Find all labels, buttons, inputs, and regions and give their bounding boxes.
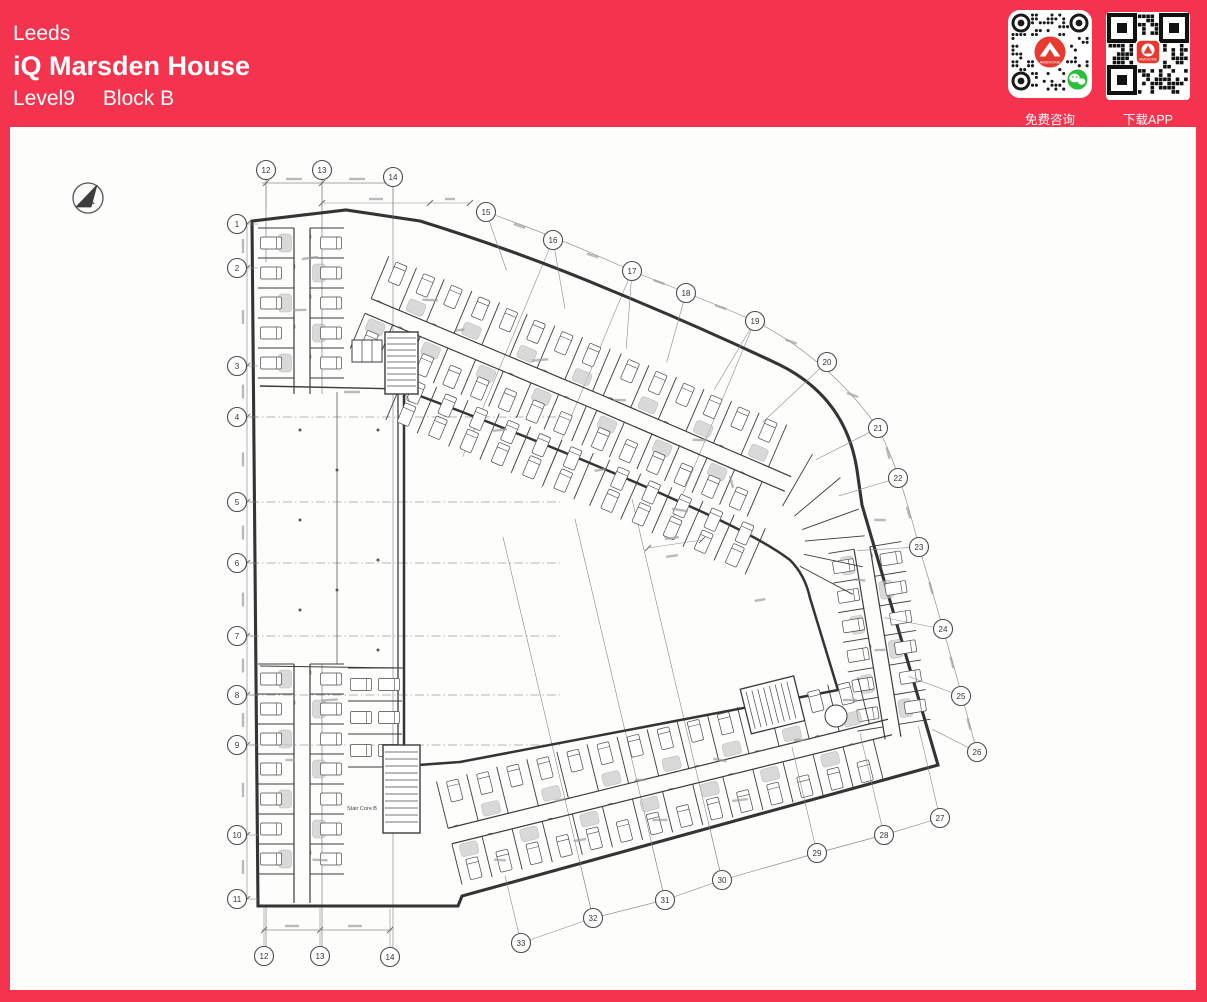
qr-module <box>1180 57 1184 61</box>
qr-module <box>1138 23 1142 27</box>
dimension-text-smudge <box>242 385 244 399</box>
stair-core-a <box>385 332 418 394</box>
qr-dot <box>1086 41 1089 44</box>
grid-bubble-label: 18 <box>682 289 691 298</box>
qr-dot <box>1062 88 1065 91</box>
qr-module <box>1155 27 1159 31</box>
qr-module <box>1125 57 1129 61</box>
qr-dot <box>1031 21 1034 24</box>
grid-bubble-label: 12 <box>262 166 271 175</box>
grid-bubble-label: 28 <box>880 831 889 840</box>
qr-dot <box>1019 68 1022 71</box>
qr-module <box>1163 61 1167 65</box>
bed-symbol <box>261 237 282 249</box>
dimension-text-smudge <box>242 860 244 874</box>
grid-bubble-label: 5 <box>235 498 240 507</box>
qr-module <box>1121 44 1125 48</box>
consult-qr-label: 免费咨询 <box>1008 109 1092 128</box>
page-title: iQ Marsden House <box>13 49 250 85</box>
qr-module <box>1155 31 1159 35</box>
bed-symbol <box>321 267 342 279</box>
dimension-text-smudge <box>294 309 307 312</box>
qr-module <box>1142 15 1146 19</box>
header: Leeds iQ Marsden House Level9Block B <box>13 20 250 113</box>
dimension-text-smudge <box>242 310 244 324</box>
qr-dot <box>1011 52 1014 55</box>
qr-dot <box>1050 80 1053 83</box>
qr-dot <box>1015 64 1018 67</box>
qr-dot <box>1062 72 1065 75</box>
qr-module <box>1184 48 1188 52</box>
column-dot <box>377 559 380 562</box>
qr-module <box>1146 73 1150 77</box>
qr-dot <box>1062 17 1065 20</box>
qr-module <box>1172 48 1176 52</box>
grid-bubble-label: 9 <box>235 741 240 750</box>
qr-dot <box>1047 72 1050 75</box>
qr-module <box>1151 15 1155 19</box>
qr-dot <box>1039 29 1042 32</box>
qr-module <box>1117 57 1121 61</box>
grid-bubble-label: 19 <box>751 317 760 326</box>
qr-dot <box>1015 33 1018 36</box>
qr-module <box>1113 61 1117 65</box>
qr-dot <box>1027 60 1030 63</box>
bed-symbol <box>379 679 400 691</box>
qr-dot <box>1039 21 1042 24</box>
dimension-text-smudge <box>445 198 455 200</box>
dimension-text-smudge <box>286 178 302 180</box>
qr-dot <box>1031 64 1034 67</box>
bed-symbol <box>261 733 282 745</box>
dimension-text-smudge <box>242 239 244 253</box>
qr-dot <box>1062 80 1065 83</box>
qr-module <box>1172 52 1176 56</box>
grid-bubble-label: 3 <box>235 362 240 371</box>
dimension-text-smudge <box>348 925 362 927</box>
qr-dot <box>1035 84 1038 87</box>
grid-bubble-label: 2 <box>235 264 240 273</box>
qr-finder-dot <box>1018 78 1025 85</box>
qr-module <box>1167 86 1171 90</box>
qr-dot <box>1058 68 1061 71</box>
qr-dot <box>1035 72 1038 75</box>
bed-symbol <box>321 703 342 715</box>
qr-dot <box>1031 84 1034 87</box>
qr-module <box>1142 73 1146 77</box>
bed-symbol <box>261 357 282 369</box>
stair-core-b <box>383 745 420 833</box>
grid-bubble-label: 27 <box>936 814 945 823</box>
wechat-bubble-small <box>1078 78 1086 84</box>
qr-dot <box>1015 60 1018 63</box>
grid-bubble-label: 32 <box>589 914 598 923</box>
grid-bubble-label: 29 <box>813 849 822 858</box>
qr-dot <box>1062 33 1065 36</box>
qr-finder-dot <box>1076 20 1083 27</box>
bed-symbol <box>379 712 400 724</box>
qr-dot <box>1011 60 1014 63</box>
qr-dot <box>1035 76 1038 79</box>
bed-symbol <box>351 745 372 757</box>
qr-module <box>1130 44 1134 48</box>
logo-text: AWEHOME <box>1139 58 1158 62</box>
qr-module <box>1167 65 1171 69</box>
dimension-text-smudge <box>875 649 886 652</box>
qr-module <box>1121 48 1125 52</box>
qr-module <box>1130 48 1134 52</box>
grid-bubble-label: 31 <box>661 896 670 905</box>
bed-symbol <box>321 733 342 745</box>
dimension-text-smudge <box>242 783 244 797</box>
qr-module <box>1151 90 1155 94</box>
dimension-text-smudge <box>285 759 294 761</box>
grid-bubble-label: 14 <box>389 173 398 182</box>
qr-dot <box>1027 64 1030 67</box>
qr-module <box>1142 82 1146 86</box>
qr-module <box>1172 90 1176 94</box>
bed-symbol <box>261 297 282 309</box>
qr-dot <box>1050 21 1053 24</box>
grid-bubble-label: 16 <box>549 236 558 245</box>
qr-module <box>1151 31 1155 35</box>
dimension-text-smudge <box>242 713 244 727</box>
wechat-eye <box>1076 76 1078 78</box>
dimension-text-smudge <box>242 659 244 673</box>
dimension-text-smudge <box>693 439 708 442</box>
dimension-text-smudge <box>614 399 626 402</box>
qr-module <box>1138 15 1142 19</box>
qr-dot <box>1082 41 1085 44</box>
qr-finder-dot <box>1018 20 1025 27</box>
grid-bubble-label: 1 <box>235 220 240 229</box>
grid-bubble-label: 13 <box>316 952 325 961</box>
lift-circle <box>825 705 847 727</box>
qr-module <box>1159 73 1163 77</box>
download-qr-code: AWEHOME <box>1106 12 1190 100</box>
qr-module <box>1138 90 1142 94</box>
qr-dot <box>1019 56 1022 59</box>
qr-module <box>1142 27 1146 31</box>
grid-bubble-label: 13 <box>318 166 327 175</box>
qr-module <box>1180 48 1184 52</box>
consult-qr-code: AWEHOME <box>1008 10 1092 98</box>
grid-bubble-label: 21 <box>874 424 883 433</box>
page: { "header": { "city": "Leeds", "building… <box>0 0 1207 1002</box>
qr-dot <box>1078 64 1081 67</box>
qr-dot <box>1047 29 1050 32</box>
paper-background <box>10 127 1196 990</box>
bed-symbol <box>261 763 282 775</box>
qr-dot <box>1035 29 1038 32</box>
qr-module <box>1184 69 1188 73</box>
qr-dot <box>1031 33 1034 36</box>
qr-module <box>1176 78 1180 82</box>
qr-module <box>1146 15 1150 19</box>
qr-module <box>1146 19 1150 23</box>
qr-module <box>1121 52 1125 56</box>
bed-symbol <box>351 712 372 724</box>
column-dot <box>377 649 380 652</box>
qr-module <box>1184 78 1188 82</box>
qr-module <box>1159 82 1163 86</box>
qr-module <box>1130 61 1134 65</box>
stair-core-b-label: Stair Core B <box>347 806 377 812</box>
grid-bubble-label: 15 <box>482 208 491 217</box>
qr-module <box>1138 69 1142 73</box>
dimension-text-smudge <box>242 526 244 540</box>
qr-dot <box>1054 88 1057 91</box>
qr-dot <box>1058 25 1061 28</box>
grid-bubble-label: 30 <box>718 876 727 885</box>
qr-module <box>1159 69 1163 73</box>
qr-dot <box>1035 17 1038 20</box>
qr-dot <box>1050 13 1053 16</box>
grid-bubble-label: 11 <box>233 895 242 904</box>
qr-dot <box>1011 49 1014 52</box>
bed-symbol <box>261 703 282 715</box>
qr-dot <box>1058 84 1061 87</box>
qr-module <box>1155 82 1159 86</box>
qr-dot <box>1050 17 1053 20</box>
qr-dot <box>1043 21 1046 24</box>
qr-module <box>1163 65 1167 69</box>
bed-symbol <box>321 763 342 775</box>
qr-module <box>1151 69 1155 73</box>
qr-module <box>1159 86 1163 90</box>
qr-module <box>1172 86 1176 90</box>
qr-module <box>1142 31 1146 35</box>
floorplan-sheet: Stair Core B1234567891011121314151617181… <box>10 127 1196 990</box>
qr-module <box>1151 86 1155 90</box>
qr-dot <box>1031 72 1034 75</box>
bed-symbol <box>261 673 282 685</box>
grid-bubble-label: 12 <box>260 952 269 961</box>
qr-dot <box>1066 25 1069 28</box>
bed-symbol <box>321 793 342 805</box>
qr-dot <box>1011 45 1014 48</box>
qr-module <box>1184 57 1188 61</box>
qr-dot <box>1078 37 1081 40</box>
qr-dot <box>1066 60 1069 63</box>
floorplan-drawing: Stair Core B1234567891011121314151617181… <box>10 127 1196 990</box>
grid-bubble-label: 24 <box>939 625 948 634</box>
bed-symbol <box>261 823 282 835</box>
bed-symbol <box>261 327 282 339</box>
grid-bubble-label: 10 <box>233 831 242 840</box>
dimension-text-smudge <box>349 178 365 180</box>
grid-bubble-label: 14 <box>386 953 395 962</box>
qr-dot <box>1023 33 1026 36</box>
bed-symbol <box>261 267 282 279</box>
qr-module <box>1151 23 1155 27</box>
qr-module <box>1176 90 1180 94</box>
bed-symbol <box>321 237 342 249</box>
qr-finder-center <box>1117 75 1127 85</box>
qr-module <box>1125 52 1129 56</box>
qr-dot <box>1047 88 1050 91</box>
qr-module <box>1163 86 1167 90</box>
dimension-text-smudge <box>242 453 244 467</box>
qr-dot <box>1035 33 1038 36</box>
dimension-text-smudge <box>874 519 886 522</box>
qr-module <box>1159 78 1163 82</box>
consult-qr-image: AWEHOME <box>1008 10 1092 98</box>
qr-module <box>1167 82 1171 86</box>
qr-module <box>1117 61 1121 65</box>
grid-bubble-label: 26 <box>973 748 982 757</box>
bed-symbol <box>321 327 342 339</box>
qr-dot <box>1086 60 1089 63</box>
dimension-text-smudge <box>635 779 645 782</box>
qr-module <box>1142 69 1146 73</box>
bed-symbol <box>321 673 342 685</box>
qr-dot <box>1074 60 1077 63</box>
dimension-text-smudge <box>652 819 667 822</box>
header-city: Leeds <box>13 20 250 48</box>
qr-dot <box>1015 52 1018 55</box>
qr-module <box>1130 52 1134 56</box>
grid-bubble-label: 25 <box>957 692 966 701</box>
qr-module <box>1176 57 1180 61</box>
qr-module <box>1155 23 1159 27</box>
dimension-text-smudge <box>344 391 360 393</box>
qr-module <box>1151 82 1155 86</box>
bed-symbol <box>321 297 342 309</box>
qr-module <box>1180 44 1184 48</box>
qr-dot <box>1070 60 1073 63</box>
block-label: Block B <box>103 87 174 110</box>
qr-dot <box>1074 49 1077 52</box>
column-dot <box>377 429 380 432</box>
qr-dot <box>1054 17 1057 20</box>
qr-dot <box>1062 21 1065 24</box>
qr-module <box>1109 44 1113 48</box>
grid-bubble-label: 4 <box>235 413 240 422</box>
bed-symbol <box>261 853 282 865</box>
bed-symbol <box>321 357 342 369</box>
level-label: Level9 <box>13 87 75 110</box>
grid-bubble-label: 8 <box>235 691 240 700</box>
dimension-text-smudge <box>242 593 244 607</box>
qr-dot <box>1086 64 1089 67</box>
qr-dot <box>1011 64 1014 67</box>
column-dot <box>299 429 302 432</box>
qr-module <box>1117 52 1121 56</box>
bed-symbol <box>261 793 282 805</box>
qr-module <box>1121 61 1125 65</box>
qr-dot <box>1054 84 1057 87</box>
grid-bubble-label: 23 <box>915 543 924 552</box>
qr-module <box>1172 57 1176 61</box>
column-dot <box>336 469 339 472</box>
qr-dot <box>1011 33 1014 36</box>
qr-dot <box>1043 80 1046 83</box>
logo-text: AWEHOME <box>1040 60 1061 65</box>
qr-dot <box>1047 21 1050 24</box>
column-dot <box>336 589 339 592</box>
qr-dot <box>1031 60 1034 63</box>
qr-module <box>1155 78 1159 82</box>
qr-dot <box>1062 25 1065 28</box>
qr-module <box>1121 57 1125 61</box>
grid-bubble-label: 33 <box>517 939 526 948</box>
column-dot <box>299 519 302 522</box>
qr-dot <box>1086 37 1089 40</box>
qr-module <box>1167 73 1171 77</box>
qr-dot <box>1050 84 1053 87</box>
qr-dot <box>1019 52 1022 55</box>
qr-module <box>1163 48 1167 52</box>
download-qr-label: 下载APP <box>1106 109 1190 128</box>
qr-module <box>1180 52 1184 56</box>
qr-finder-center <box>1117 23 1127 33</box>
column-dot <box>299 609 302 612</box>
qr-dot <box>1015 45 1018 48</box>
lift-block <box>352 340 382 362</box>
qr-module <box>1172 69 1176 73</box>
qr-module <box>1142 23 1146 27</box>
qr-dot <box>1011 37 1014 40</box>
qr-dot <box>1019 33 1022 36</box>
qr-module <box>1176 61 1180 65</box>
qr-module <box>1113 44 1117 48</box>
qr-module <box>1172 82 1176 86</box>
qr-dot <box>1047 17 1050 20</box>
header-subtitle: Level9Block B <box>13 85 250 113</box>
qr-module <box>1180 82 1184 86</box>
qr-module <box>1146 78 1150 82</box>
qr-dot <box>1070 45 1073 48</box>
dimension-text-smudge <box>843 699 857 702</box>
grid-bubble-label: 7 <box>235 632 240 641</box>
qr-module <box>1163 78 1167 82</box>
qr-module <box>1113 57 1117 61</box>
qr-module <box>1167 78 1171 82</box>
qr-dot <box>1074 56 1077 59</box>
download-qr-image: AWEHOME <box>1106 12 1190 96</box>
qr-panel: AWEHOME AWEHOME 免费咨询 下载APP <box>1008 8 1196 124</box>
wechat-eye <box>1072 76 1074 78</box>
qr-dot <box>1058 13 1061 16</box>
qr-dot <box>1031 17 1034 20</box>
grid-bubble-label: 20 <box>823 358 832 367</box>
qr-module <box>1180 61 1184 65</box>
qr-dot <box>1023 68 1026 71</box>
grid-bubble-label: 6 <box>235 559 240 568</box>
qr-module <box>1151 19 1155 23</box>
qr-dot <box>1031 13 1034 16</box>
grid-bubble-label: 17 <box>628 267 637 276</box>
qr-dot <box>1035 13 1038 16</box>
qr-finder-center <box>1169 23 1179 33</box>
dimension-text-smudge <box>369 198 383 200</box>
dimension-text-smudge <box>285 925 299 927</box>
qr-module <box>1117 44 1121 48</box>
bed-symbol <box>351 679 372 691</box>
qr-module <box>1163 44 1167 48</box>
grid-bubble-label: 22 <box>894 474 903 483</box>
qr-dot <box>1058 33 1061 36</box>
bed-symbol <box>321 823 342 835</box>
qr-module <box>1176 82 1180 86</box>
